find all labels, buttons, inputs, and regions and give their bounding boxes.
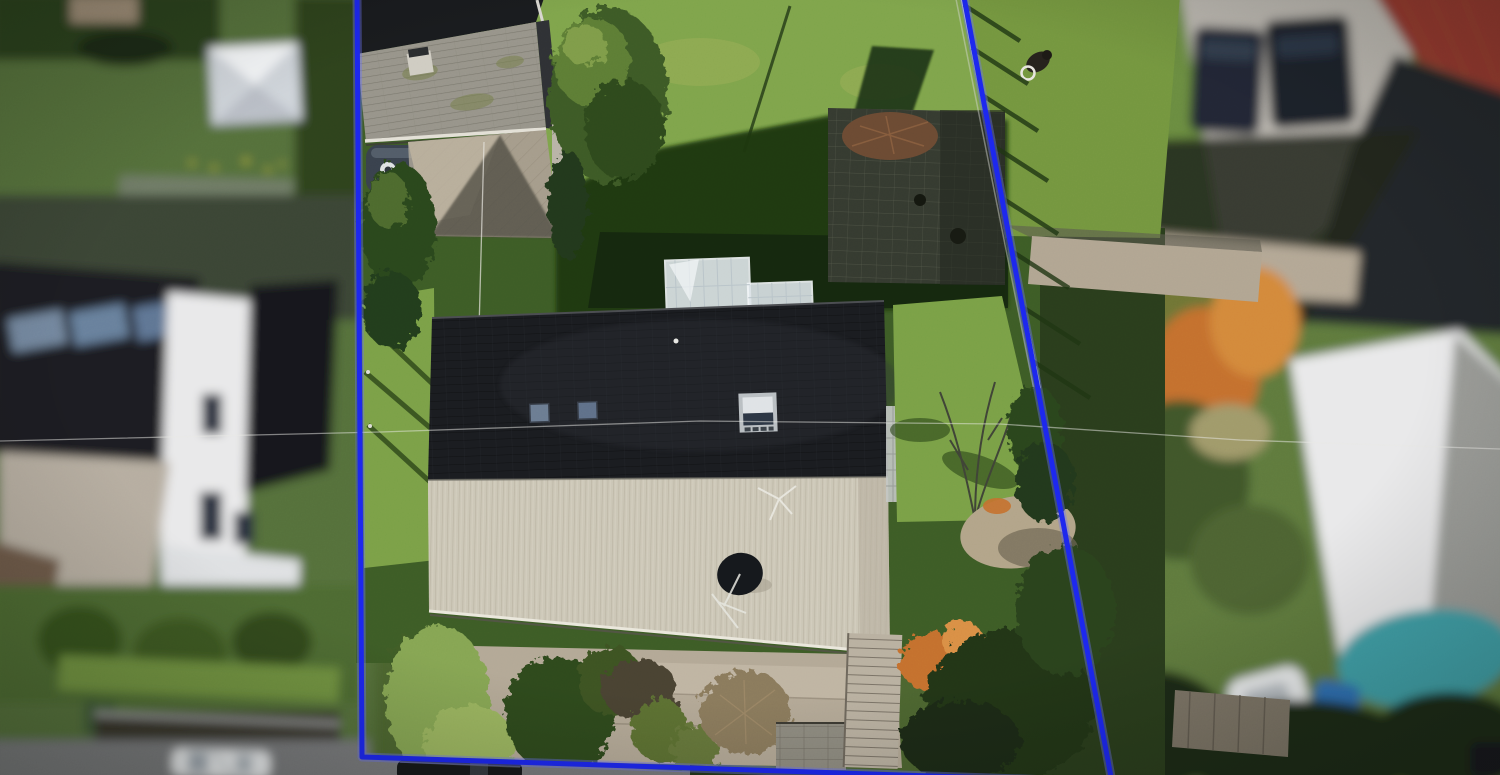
aerial-photo-canvas: [0, 0, 1500, 775]
vignette: [0, 0, 1500, 775]
aerial-photo: [0, 0, 1500, 775]
